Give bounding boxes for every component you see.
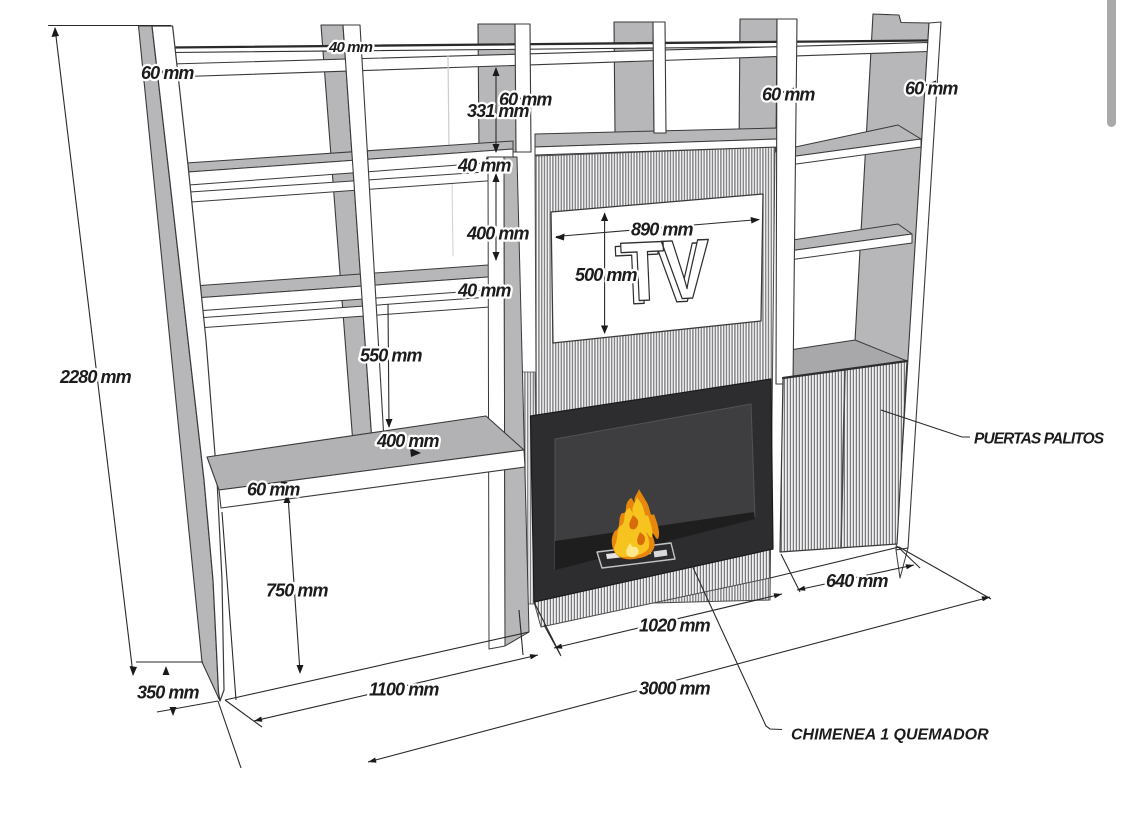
svg-text:60 mm: 60 mm [762,85,815,105]
svg-text:3000 mm: 3000 mm [639,679,711,699]
svg-text:1100 mm: 1100 mm [369,680,439,700]
svg-text:60 mm: 60 mm [247,480,300,500]
svg-text:60 mm: 60 mm [905,79,958,99]
svg-text:PUERTAS PALITOS: PUERTAS PALITOS [974,431,1105,448]
svg-text:40 mm: 40 mm [457,281,511,301]
svg-text:750 mm: 750 mm [266,581,329,601]
svg-text:350 mm: 350 mm [137,683,200,703]
svg-text:400 mm: 400 mm [466,224,530,244]
svg-text:40 mm: 40 mm [328,39,373,56]
svg-text:CHIMENEA 1 QUEMADOR: CHIMENEA 1 QUEMADOR [791,727,989,744]
svg-text:500 mm: 500 mm [575,265,638,285]
svg-text:60 mm: 60 mm [141,63,194,83]
svg-text:400 mm: 400 mm [376,431,440,451]
svg-text:640 mm: 640 mm [826,571,889,591]
svg-text:1020 mm: 1020 mm [639,616,711,636]
svg-text:40 mm: 40 mm [457,156,511,176]
svg-text:890 mm: 890 mm [631,220,694,240]
svg-text:2280 mm: 2280 mm [59,367,132,387]
svg-text:331 mm: 331 mm [467,101,530,121]
svg-text:550 mm: 550 mm [360,346,423,366]
